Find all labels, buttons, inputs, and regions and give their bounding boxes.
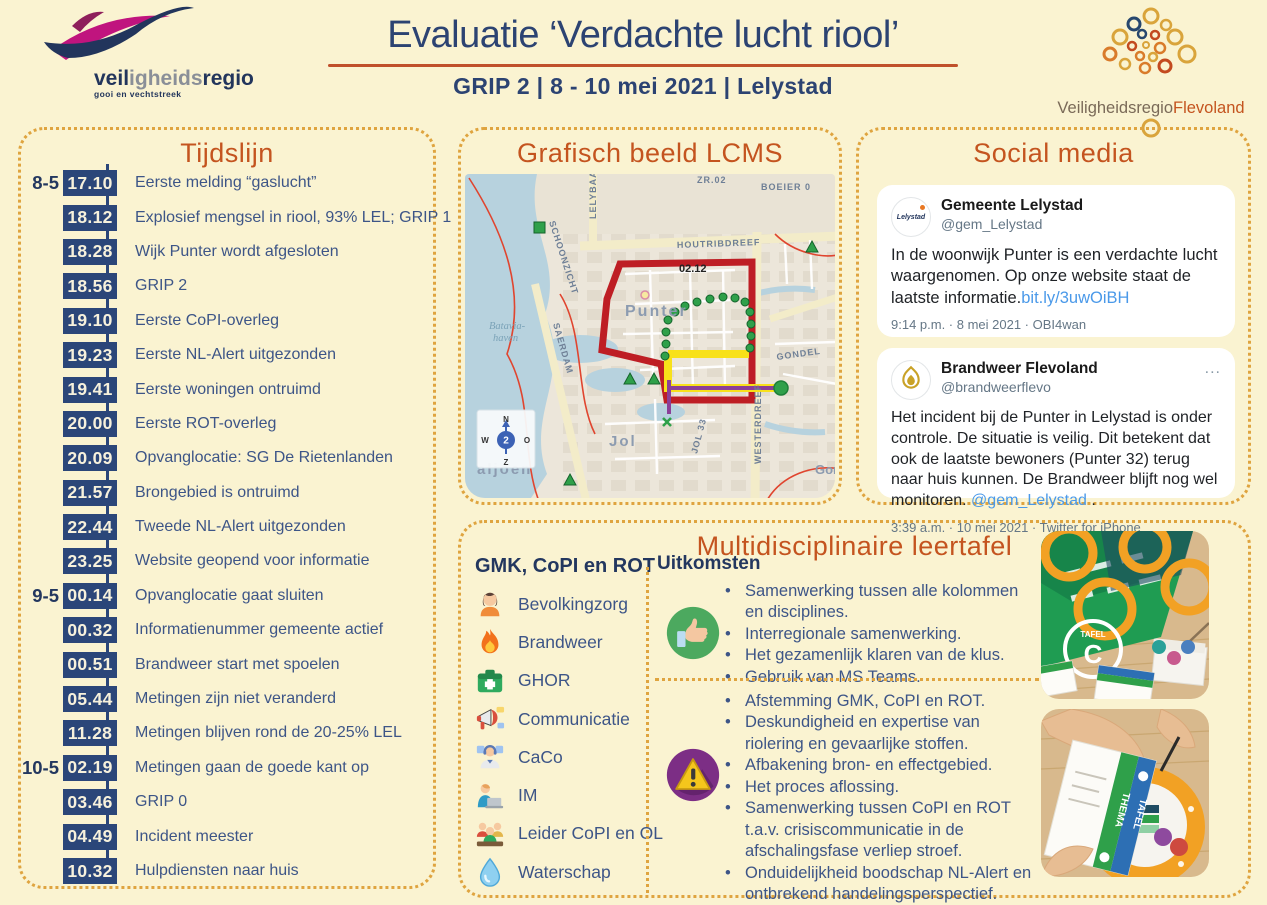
timeline-time-badge: 05.44 xyxy=(63,686,117,712)
svg-text:W: W xyxy=(481,436,489,445)
svg-text:02.12: 02.12 xyxy=(679,263,707,275)
svg-text:O: O xyxy=(524,436,530,445)
timeline-row: 21.57 Brongebied is ontruimd xyxy=(21,476,427,510)
leertafel-panel: Multidisciplinaire leertafel GMK, CoPI e… xyxy=(458,520,1251,898)
role-item: Brandweer xyxy=(475,623,647,661)
map-title: Grafisch beeld LCMS xyxy=(461,138,839,169)
map-marker-green-circle xyxy=(774,381,788,395)
avatar-brandweer-flevoland xyxy=(891,360,931,400)
timeline-row: 18.12 Explosief mengsel in riool, 93% LE… xyxy=(21,200,427,234)
timeline-event-label: Informatienummer gemeente actief xyxy=(135,621,383,639)
svg-text:LELYBAAN: LELYBAAN xyxy=(588,174,598,219)
timeline-row: 8-5 17.10 Eerste melding “gaslucht” xyxy=(21,166,427,200)
role-item: IM xyxy=(475,776,647,814)
flame-icon xyxy=(475,627,505,657)
operator-icon xyxy=(475,742,505,772)
logo-veiligheidsregio-gooi-vechtstreek: veiligheidsregio gooi en vechtstreek xyxy=(42,6,252,99)
positive-outcome-item: Interregionale samenwerking. xyxy=(721,624,1041,645)
timeline-row: 22.44 Tweede NL-Alert uitgezonden xyxy=(21,510,427,544)
title-rule xyxy=(328,64,958,67)
timeline-event-label: Eerste ROT-overleg xyxy=(135,415,276,433)
logo-circles-icon xyxy=(1046,4,1256,96)
group-icon xyxy=(475,819,505,849)
lcms-map: LELYBAAN SCHOONZICHT BOEIER 0 ZR.02 HOUT… xyxy=(465,174,835,498)
thumbs-up-icon xyxy=(665,605,721,661)
timeline-time-badge: 18.56 xyxy=(63,273,117,299)
photo-leertafel-board: TAFEL C xyxy=(1041,531,1209,699)
role-label: Bevolkingzorg xyxy=(518,594,628,615)
timeline-event-label: Eerste melding “gaslucht” xyxy=(135,174,316,192)
person-icon xyxy=(475,589,505,619)
timeline-panel: Tijdslijn 8-5 17.10 Eerste melding “gasl… xyxy=(18,127,436,889)
svg-text:2: 2 xyxy=(503,436,509,447)
tweet-author-handle: @gem_Lelystad xyxy=(941,216,1083,233)
role-label: GHOR xyxy=(518,670,571,691)
timeline-row: 20.00 Eerste ROT-overleg xyxy=(21,407,427,441)
timeline-event-label: GRIP 0 xyxy=(135,793,187,811)
role-label: Waterschap xyxy=(518,862,611,883)
svg-text:BOEIER 0: BOEIER 0 xyxy=(761,182,811,192)
timeline-row: 04.49 Incident meester xyxy=(21,819,427,853)
avatar-gemeente-lelystad: Lelystad xyxy=(891,197,931,237)
negative-outcome-item: Afbakening bron- en effectgebied. xyxy=(721,755,1041,776)
timeline-row: 10-5 02.19 Metingen gaan de goede kant o… xyxy=(21,751,427,785)
timeline-event-label: Opvanglocatie: SG De Rietenlanden xyxy=(135,449,393,467)
droplet-icon xyxy=(475,857,505,887)
timeline-rows: 8-5 17.10 Eerste melding “gaslucht” 18.1… xyxy=(21,166,427,888)
timeline-time-badge: 20.00 xyxy=(63,411,117,437)
negative-outcome-item: Deskundigheid en expertise van riolering… xyxy=(721,712,1041,755)
timeline-time-badge: 03.46 xyxy=(63,789,117,815)
logo-swoosh-icon xyxy=(42,6,242,68)
timeline-time-badge: 19.23 xyxy=(63,342,117,368)
role-label: Leider CoPI en OL xyxy=(518,823,663,844)
timeline-event-label: Opvanglocatie gaat sluiten xyxy=(135,587,324,605)
timeline-time-badge: 23.25 xyxy=(63,548,117,574)
positive-outcome-item: Samenwerking tussen alle kolommen en dis… xyxy=(721,581,1041,624)
timeline-event-label: GRIP 2 xyxy=(135,277,187,295)
timeline-time-badge: 10.32 xyxy=(63,858,117,884)
timeline-day-label: 9-5 xyxy=(21,585,59,607)
role-label: CaCo xyxy=(518,747,563,768)
timeline-time-badge: 00.51 xyxy=(63,652,117,678)
timeline-event-label: Eerste woningen ontruimd xyxy=(135,381,321,399)
role-item: Bevolkingzorg xyxy=(475,585,647,623)
svg-text:WESTERDREEF: WESTERDREEF xyxy=(753,384,763,464)
svg-text:haven: haven xyxy=(493,333,518,344)
timeline-event-label: Metingen zijn niet veranderd xyxy=(135,690,336,708)
timeline-time-badge: 22.44 xyxy=(63,514,117,540)
svg-text:Jol: Jol xyxy=(609,433,637,450)
negative-outcome-item: Afstemming GMK, CoPI en ROT. xyxy=(721,691,1041,712)
timeline-row: 05.44 Metingen zijn niet veranderd xyxy=(21,682,427,716)
svg-text:C: C xyxy=(1084,639,1103,669)
tweet-link[interactable]: bit.ly/3uwOiBH xyxy=(1021,289,1129,307)
laptop-icon xyxy=(475,781,505,811)
timeline-day-label: 8-5 xyxy=(21,172,59,194)
role-item: Communicatie xyxy=(475,700,647,738)
tweet-author-handle: @brandweerflevo xyxy=(941,379,1098,396)
tweet-author-name: Brandweer Flevoland xyxy=(941,360,1098,379)
timeline-event-label: Brongebied is ontruimd xyxy=(135,484,300,502)
timeline-event-label: Metingen gaan de goede kant op xyxy=(135,759,369,777)
timeline-event-label: Wijk Punter wordt afgesloten xyxy=(135,243,339,261)
timeline-time-badge: 11.28 xyxy=(63,720,117,746)
timeline-row: 00.32 Informatienummer gemeente actief xyxy=(21,613,427,647)
negative-outcome-item: Onduidelijkheid boodschap NL-Alert en on… xyxy=(721,863,1041,905)
svg-text:Z: Z xyxy=(504,458,509,467)
timeline-time-badge: 00.14 xyxy=(63,583,117,609)
vertical-divider xyxy=(646,567,649,893)
page-title: Evaluatie ‘Verdachte lucht riool’ xyxy=(318,14,968,57)
timeline-event-label: Eerste CoPI-overleg xyxy=(135,312,279,330)
tweet-mention-link[interactable]: @gem_Lelystad xyxy=(971,492,1087,509)
timeline-time-badge: 20.09 xyxy=(63,445,117,471)
logo-veiligheidsregio-flevoland: VeiligheidsregioFlevoland xyxy=(1046,4,1256,145)
tweet-brandweer-flevoland: Brandweer Flevoland @brandweerflevo ... … xyxy=(877,348,1235,498)
role-item: Leider CoPI en OL xyxy=(475,815,647,853)
brandweer-emblem-icon xyxy=(894,363,928,397)
timeline-row: 18.56 GRIP 2 xyxy=(21,269,427,303)
firstaid-icon xyxy=(475,666,505,696)
role-label: Communicatie xyxy=(518,709,630,730)
timeline-event-label: Tweede NL-Alert uitgezonden xyxy=(135,518,346,536)
role-item: Waterschap xyxy=(475,853,647,891)
map-image: LELYBAAN SCHOONZICHT BOEIER 0 ZR.02 HOUT… xyxy=(465,174,835,498)
header-title-block: Evaluatie ‘Verdachte lucht riool’ GRIP 2… xyxy=(318,14,968,100)
svg-text:Punter: Punter xyxy=(625,303,688,320)
timeline-row: 19.23 Eerste NL-Alert uitgezonden xyxy=(21,338,427,372)
role-label: IM xyxy=(518,785,537,806)
logo-left-wordmark: veiligheidsregio xyxy=(94,68,252,89)
positive-outcomes-block: Samenwerking tussen alle kolommen en dis… xyxy=(657,581,1041,688)
tweet-timestamp: 9:14 p.m. · 8 mei 2021 · OBI4wan xyxy=(891,317,1221,332)
timeline-title: Tijdslijn xyxy=(21,138,433,169)
timeline-event-label: Eerste NL-Alert uitgezonden xyxy=(135,346,336,364)
timeline-time-badge: 19.41 xyxy=(63,377,117,403)
svg-text:TAFEL: TAFEL xyxy=(1080,630,1105,639)
svg-text:Gond: Gond xyxy=(815,462,835,477)
page-subtitle: GRIP 2 | 8 - 10 mei 2021 | Lelystad xyxy=(318,73,968,100)
timeline-row: 20.09 Opvanglocatie: SG De Rietenlanden xyxy=(21,441,427,475)
timeline-time-badge: 02.19 xyxy=(63,755,117,781)
social-media-panel: Social media Lelystad Gemeente Lelystad … xyxy=(856,127,1251,505)
photo-leertafel-cards: TAFEL THEMA xyxy=(1041,709,1209,877)
timeline-row: 00.51 Brandweer start met spoelen xyxy=(21,647,427,681)
roles-header: GMK, CoPI en ROT xyxy=(475,555,655,578)
timeline-row: 9-5 00.14 Opvanglocatie gaat sluiten xyxy=(21,579,427,613)
timeline-time-badge: 18.12 xyxy=(63,205,117,231)
timeline-time-badge: 18.28 xyxy=(63,239,117,265)
timeline-time-badge: 00.32 xyxy=(63,617,117,643)
infographic-page: veiligheidsregio gooi en vechtstreek Eva… xyxy=(0,0,1267,905)
timeline-time-badge: 04.49 xyxy=(63,824,117,850)
tweet-gemeente-lelystad: Lelystad Gemeente Lelystad @gem_Lelystad… xyxy=(877,185,1235,337)
avatar-orange-dot-icon xyxy=(920,205,925,210)
social-title: Social media xyxy=(859,138,1248,169)
megaphone-icon xyxy=(475,704,505,734)
timeline-row: 03.46 GRIP 0 xyxy=(21,785,427,819)
timeline-row: 19.10 Eerste CoPI-overleg xyxy=(21,304,427,338)
timeline-event-label: Incident meester xyxy=(135,828,253,846)
timeline-event-label: Explosief mengsel in riool, 93% LEL; GRI… xyxy=(135,209,451,227)
tweet-author-name: Gemeente Lelystad xyxy=(941,197,1083,216)
role-item: CaCo xyxy=(475,738,647,776)
timeline-row: 10.32 Hulpdiensten naar huis xyxy=(21,854,427,888)
timeline-row: 19.41 Eerste woningen ontruimd xyxy=(21,372,427,406)
timeline-event-label: Metingen blijven rond de 20-25% LEL xyxy=(135,724,402,742)
timeline-event-label: Hulpdiensten naar huis xyxy=(135,862,299,880)
tweet-more-menu[interactable]: ... xyxy=(1205,360,1221,378)
svg-text:N: N xyxy=(503,415,509,424)
roles-list: Bevolkingzorg Brandweer GHOR Communicati… xyxy=(475,585,647,891)
timeline-row: 23.25 Website geopend voor informatie xyxy=(21,544,427,578)
outcomes-header: Uitkomsten xyxy=(657,553,760,575)
compass-rose: 2 N Z W O xyxy=(477,410,535,468)
svg-text:ZR.02: ZR.02 xyxy=(697,175,727,185)
timeline-event-label: Brandweer start met spoelen xyxy=(135,656,340,674)
negative-outcome-item: Het proces aflossing. xyxy=(721,777,1041,798)
negative-outcome-item: Samenwerking tussen CoPI en ROT t.a.v. c… xyxy=(721,798,1041,862)
outcomes-divider xyxy=(655,678,1039,681)
timeline-time-badge: 21.57 xyxy=(63,480,117,506)
map-panel: Grafisch beeld LCMS xyxy=(458,127,842,505)
timeline-event-label: Website geopend voor informatie xyxy=(135,552,370,570)
logo-right-wordmark: VeiligheidsregioFlevoland xyxy=(1046,99,1256,118)
svg-text:Batavia-: Batavia- xyxy=(489,321,526,332)
timeline-time-badge: 17.10 xyxy=(63,170,117,196)
negative-outcomes-block: Afstemming GMK, CoPI en ROT.Deskundighei… xyxy=(657,691,1041,905)
role-item: GHOR xyxy=(475,662,647,700)
role-label: Brandweer xyxy=(518,632,603,653)
logo-left-tagline: gooi en vechtstreek xyxy=(94,89,252,99)
timeline-row: 11.28 Metingen blijven rond de 20-25% LE… xyxy=(21,716,427,750)
warning-icon xyxy=(665,747,721,803)
timeline-row: 18.28 Wijk Punter wordt afgesloten xyxy=(21,235,427,269)
positive-outcome-item: Het gezamenlijk klaren van de klus. xyxy=(721,645,1041,666)
timeline-time-badge: 19.10 xyxy=(63,308,117,334)
timeline-day-label: 10-5 xyxy=(21,757,59,779)
